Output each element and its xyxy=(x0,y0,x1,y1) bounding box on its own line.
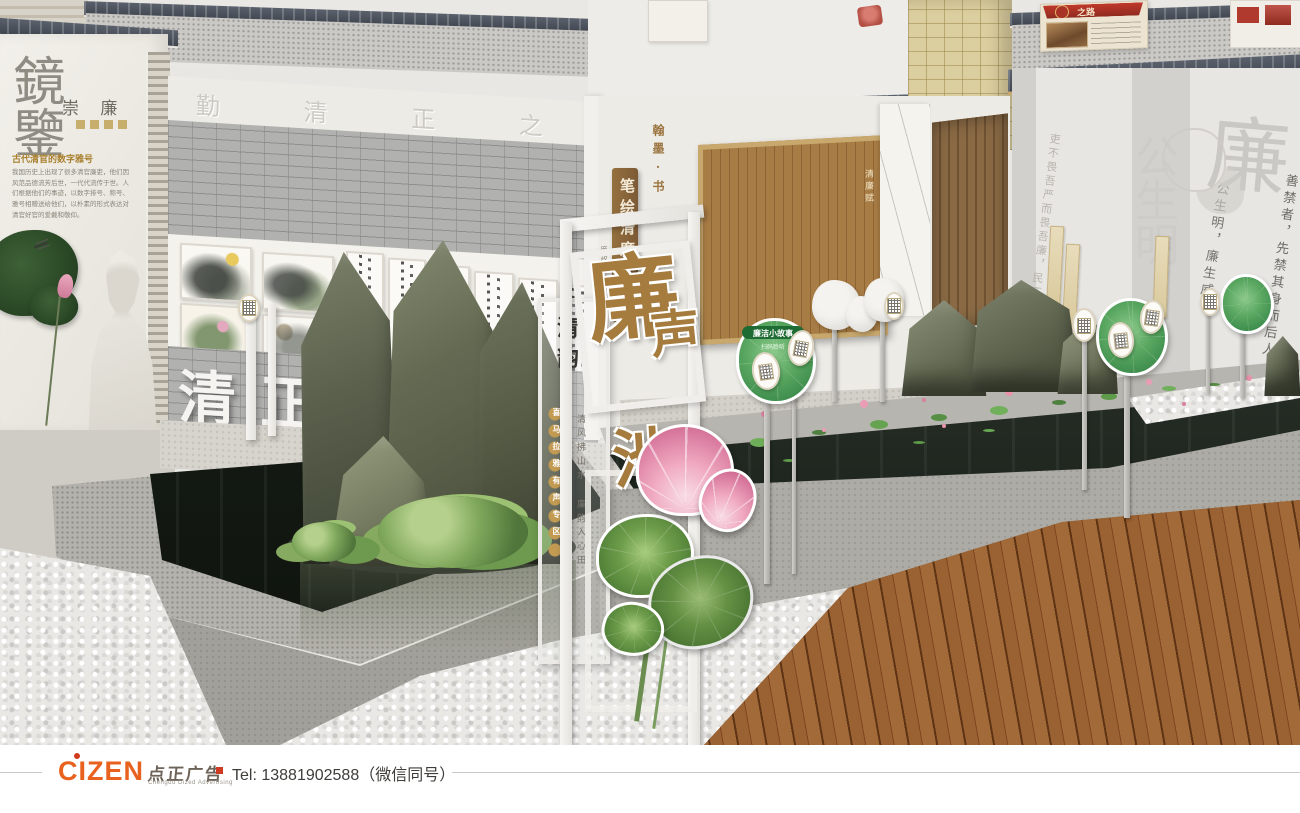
footer: CIZEN 点正广告 Chengdu Dized Advertising Tel… xyxy=(0,745,1300,813)
top-right-board xyxy=(1230,0,1300,48)
poster-red-1 xyxy=(1237,7,1259,23)
lotus-lineart xyxy=(1162,128,1226,192)
red-banner-seal xyxy=(1055,5,1069,19)
pond-name-char-2: 声 xyxy=(646,292,703,369)
mirror-subtitle: 崇 廉 xyxy=(62,94,125,119)
moss-bush-small xyxy=(292,522,356,562)
design-render-board: 之路 鏡鑒 崇 廉 古代清官的数字雅号 我国历史上出现了很多清官廉吏，他们因风范… xyxy=(0,0,1300,813)
banner-text-lines xyxy=(1091,21,1141,45)
screen-title: 清廉赋 xyxy=(862,169,875,240)
qr-oval xyxy=(1072,308,1096,342)
sign-post xyxy=(1082,338,1087,490)
footer-rule-right xyxy=(452,772,1300,773)
logo-dot xyxy=(74,753,80,759)
mirror-heading: 古代清官的数字雅号 xyxy=(12,152,142,165)
poster-red-2 xyxy=(1265,5,1291,25)
upper-display-board xyxy=(648,0,708,42)
sign-post xyxy=(1124,366,1130,518)
footer-rule-left xyxy=(0,772,42,773)
footer-tel: Tel: 13881902588（微信同号） xyxy=(232,761,455,785)
banner-photo xyxy=(1046,21,1088,48)
company-logo: CIZEN xyxy=(58,756,144,787)
red-banner-board: 之路 xyxy=(1040,0,1148,52)
sign-post xyxy=(1206,312,1210,394)
small-sign-oval xyxy=(884,292,904,320)
mirror-culture-panel: 鏡鑒 崇 廉 古代清官的数字雅号 我国历史上出现了很多清官廉吏，他们因风范品德流… xyxy=(0,34,168,434)
small-sign-oval xyxy=(238,294,260,322)
footer-bullet xyxy=(216,767,223,774)
sign-post xyxy=(764,396,770,584)
white-post xyxy=(268,304,276,436)
moss-bush xyxy=(378,496,528,568)
red-ribbon-header: 之路 xyxy=(1043,2,1143,18)
red-banner-text: 之路 xyxy=(1077,5,1095,19)
mirror-body-text: 我国历史上出现了很多清官廉吏，他们因风范品德流芳后世，一代代流传于世。人们根据他… xyxy=(12,168,132,222)
small-red-emblem xyxy=(857,4,884,27)
exhibition-hall-render: 之路 鏡鑒 崇 廉 古代清官的数字雅号 我国历史上出现了很多清官廉吏，他们因风范… xyxy=(0,0,1300,745)
qr-oval xyxy=(1200,288,1220,316)
story-sign-leaf xyxy=(1220,274,1274,334)
cutout-post xyxy=(880,316,885,402)
cutout-post xyxy=(832,324,837,402)
painting-frame xyxy=(180,243,252,303)
logo-en-text: Chengdu Dized Advertising xyxy=(148,780,233,786)
sign-post xyxy=(1240,326,1245,398)
portal-left-post xyxy=(560,222,572,745)
seal-stamps xyxy=(76,120,85,129)
